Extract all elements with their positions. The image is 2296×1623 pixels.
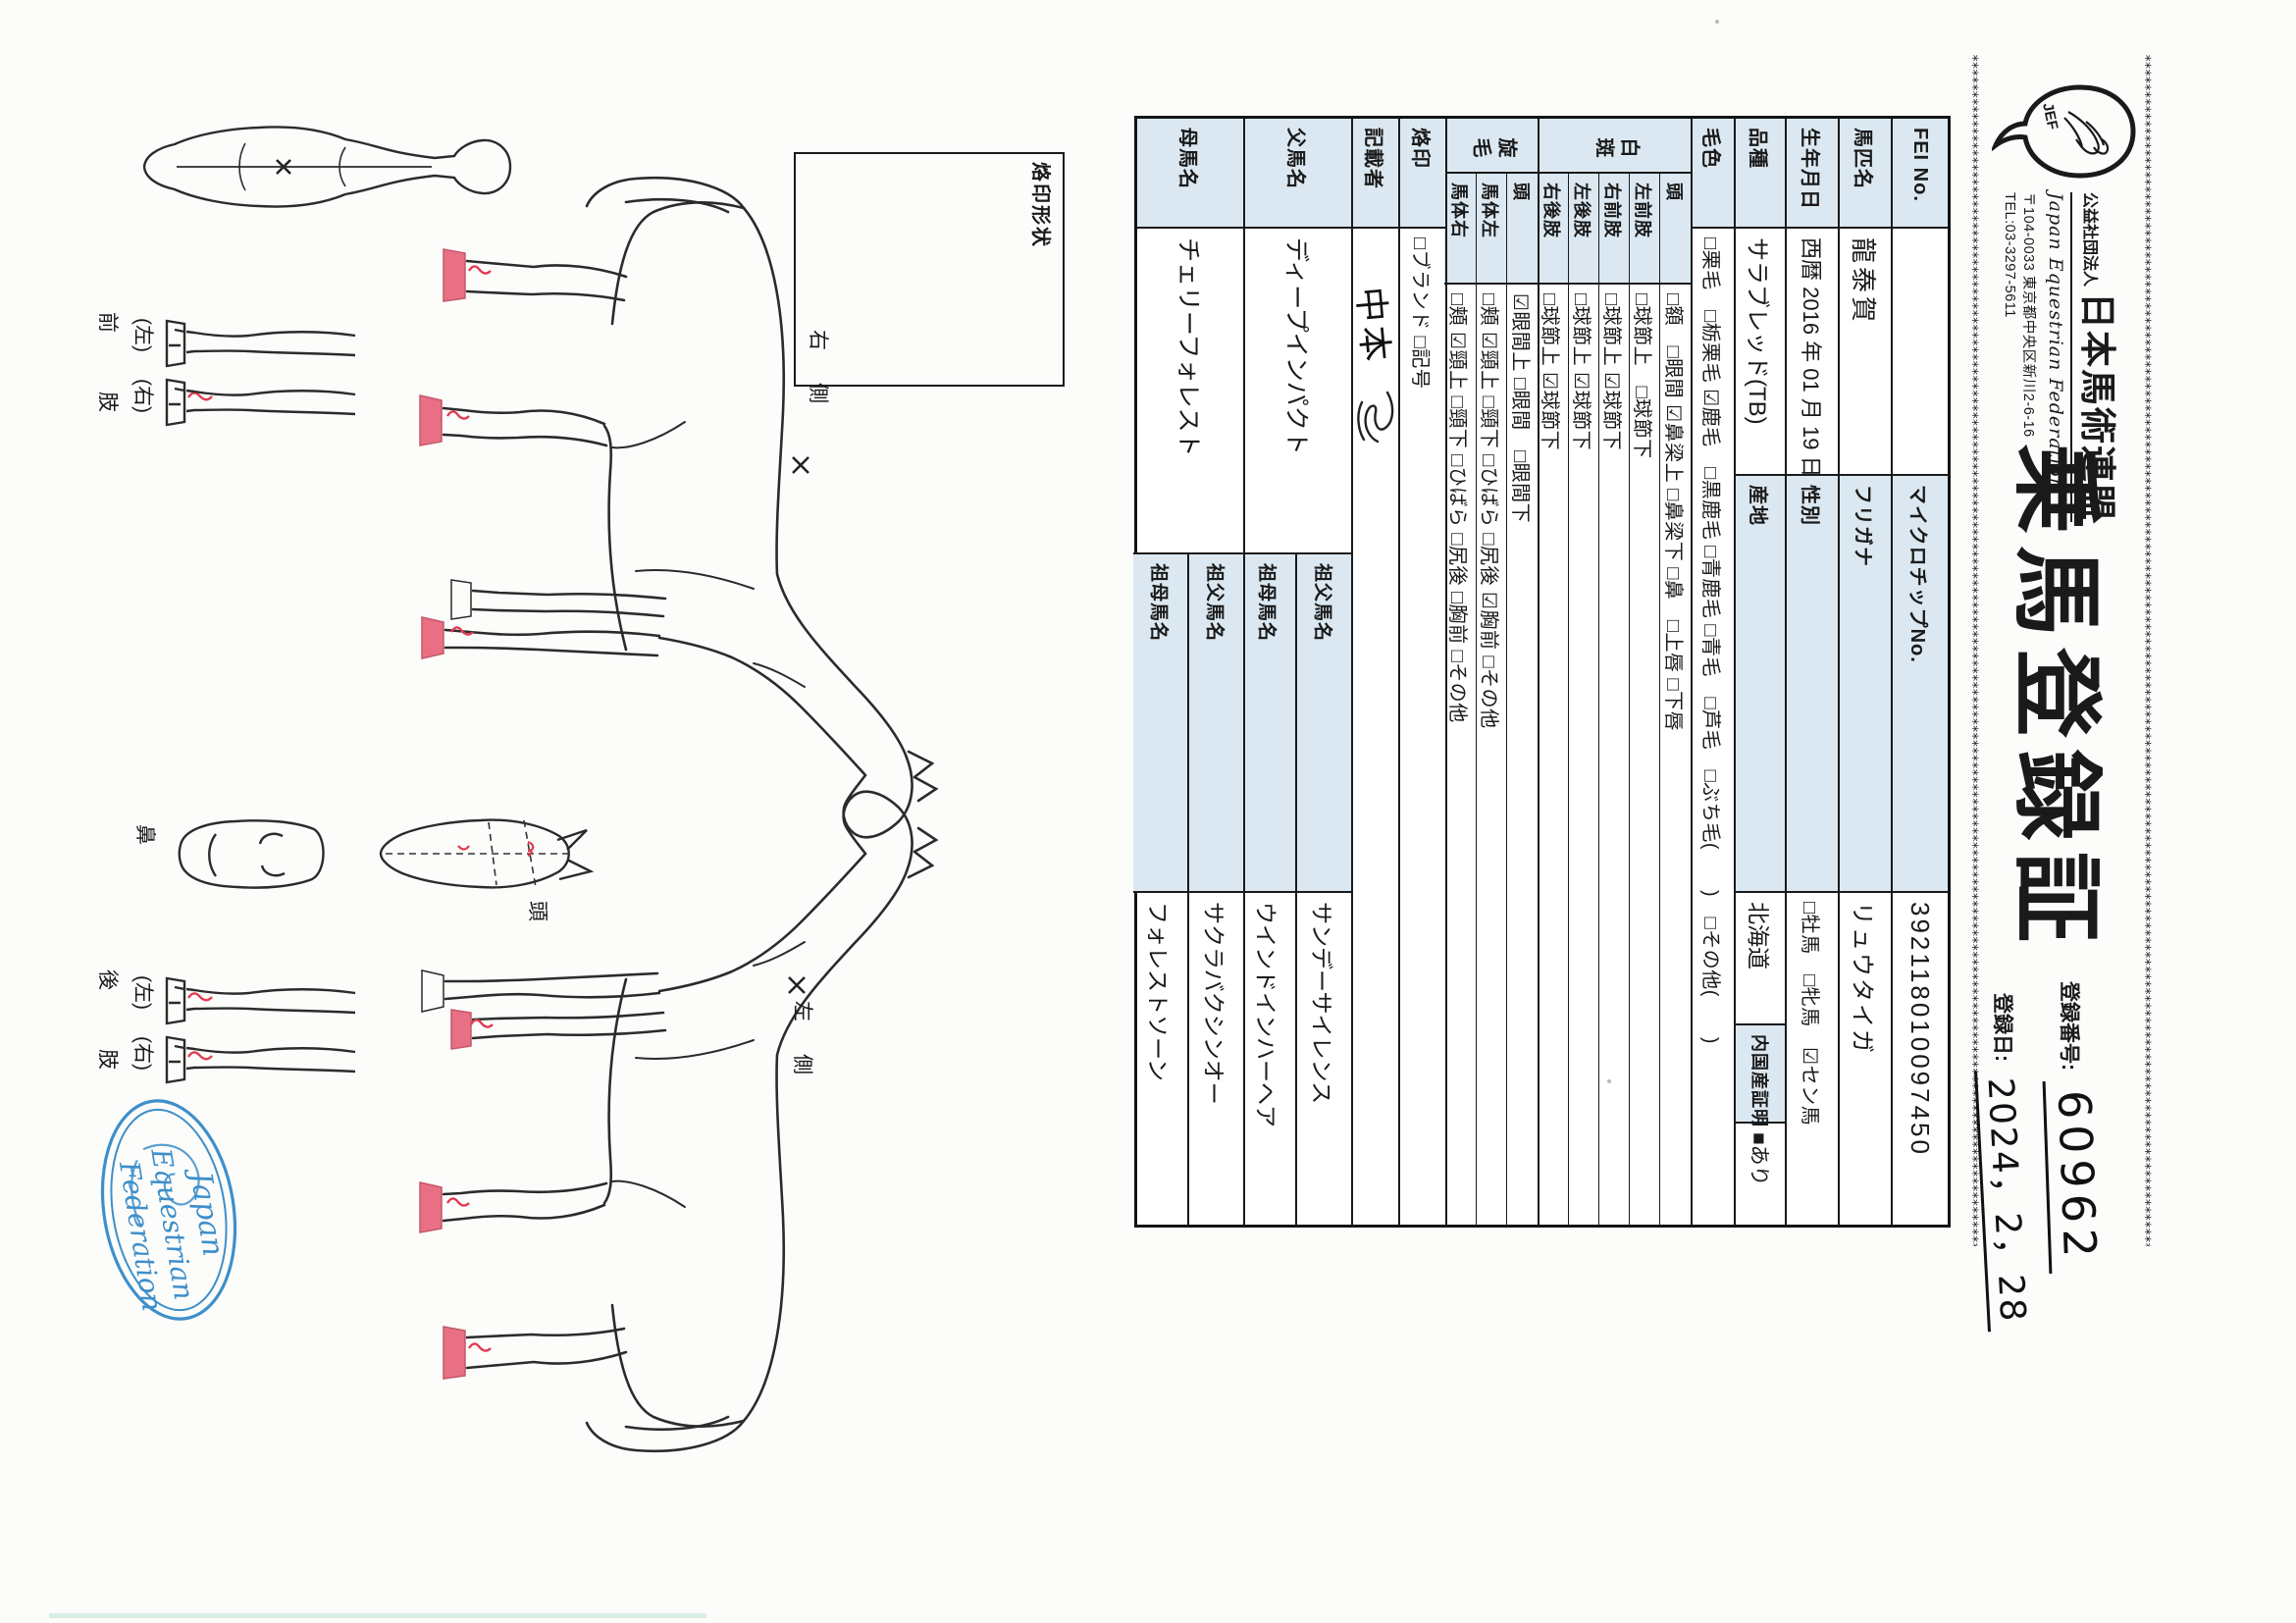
- whorls-subrows: 頭 ☑眼間上 □眼間 □眼間下 馬体左 □頬 ☑頸上 □頸下 □ひばら □尻後 …: [1445, 172, 1538, 1225]
- table-row-coat-color: 毛色 □栗毛 □栃栗毛 ☑鹿毛 □黒鹿毛 □青鹿毛 □青毛 □芦毛 □ぶち毛( …: [1693, 119, 1736, 1225]
- certificate-sheet: ****************************************…: [0, 0, 2296, 1623]
- whorl-body-left-row: 馬体左 □頬 ☑頸上 □頸下 □ひばら □尻後 ☑胸前 □その他: [1476, 172, 1507, 1225]
- wm-head-value: □額 □眼間 ☑鼻梁上 □鼻梁下 □鼻 □上唇 □下唇: [1660, 283, 1691, 1225]
- dam-gm-row: 祖母馬名 フォレストソーン: [1133, 552, 1189, 1225]
- document-title: 乗馬登録証: [1999, 444, 2129, 954]
- horse-right-side-outline: [444, 178, 936, 837]
- scan-speck: [1715, 20, 1719, 24]
- front-limbs-diagram: [167, 321, 355, 425]
- microchip-value: 392118010097450: [1893, 891, 1948, 1225]
- furigana-value: リュウタイガ: [1840, 891, 1891, 1225]
- fei-value: [1893, 227, 1948, 474]
- wm-right-fore-row: 右前肢 □球節上 ☑球節下: [1598, 172, 1630, 1225]
- registration-date-label: 登録日:: [1981, 993, 2018, 1062]
- birthdate-value: 西暦 2016 年 01 月 19 日 生: [1787, 227, 1838, 474]
- domestic-cert-label: 内国産証明: [1736, 1023, 1785, 1122]
- brand-value: □ブランド □記号: [1400, 227, 1445, 1225]
- sire-gf-row: 祖父馬名 サンデーサイレンス: [1297, 552, 1351, 1225]
- whorl-body-left-label: 馬体左: [1476, 172, 1506, 283]
- domestic-cert-value: ■あり: [1736, 1122, 1785, 1225]
- recorder-label: 記載者: [1353, 119, 1398, 227]
- registration-number-row: 登録番号: 60962: [2046, 981, 2104, 1273]
- wm-left-hind-row: 左後肢 □球節上 ☑球節下: [1568, 172, 1599, 1225]
- horse-data-table: FEI No. マイクロチップNo. 392118010097450 馬匹名 龍…: [1134, 116, 1951, 1228]
- wm-right-fore-label: 右前肢: [1598, 172, 1629, 283]
- label-front-right-paren: (右): [130, 379, 159, 413]
- whorls-group-text: 旋毛: [1467, 133, 1518, 157]
- wm-head-label: 頭: [1660, 172, 1691, 283]
- horse-name-label: 馬匹名: [1840, 119, 1891, 227]
- wm-head-row: 頭 □額 □眼間 ☑鼻梁上 □鼻梁下 □鼻 □上唇 □下唇: [1660, 172, 1691, 1225]
- coat-color-label: 毛色: [1693, 119, 1734, 227]
- dam-grandsire-label: 祖父馬名: [1189, 552, 1243, 891]
- breed-label: 品種: [1736, 119, 1785, 227]
- table-row-fei: FEI No. マイクロチップNo. 392118010097450: [1893, 119, 1948, 1225]
- sex-label: 性別: [1787, 474, 1838, 891]
- head-front-view: [381, 820, 591, 888]
- sire-grandsire-value: サンデーサイレンス: [1297, 891, 1351, 1225]
- label-left-side: 左 側: [789, 1001, 818, 1080]
- decorative-border-top: ****************************************…: [2135, 54, 2153, 1246]
- table-row-birthdate: 生年月日 西暦 2016 年 01 月 19 日 生 性別 □牡馬 □牝馬 ☑セ…: [1787, 119, 1840, 1225]
- registration-date-value: 2024，2，28: [1974, 1069, 2042, 1333]
- wm-right-hind-value: □球節上 ☑球節下: [1537, 283, 1568, 1225]
- whorls-group-label: 旋毛: [1447, 119, 1538, 172]
- white-markings-group-label: 白斑: [1539, 119, 1691, 172]
- whorl-head-row: 頭 ☑眼間上 □眼間 □眼間下: [1507, 172, 1538, 1225]
- dam-grandsire-value: サクラバクシンオー: [1189, 891, 1243, 1225]
- org-type: 公益社団法人: [2081, 192, 2098, 287]
- nose-bridge-red-mark: [458, 846, 469, 850]
- sire-label: 父馬名: [1245, 119, 1351, 227]
- table-row-brand: 烙印 □ブランド □記号: [1400, 119, 1447, 1225]
- birthdate-label: 生年月日: [1787, 119, 1838, 227]
- jef-logo-text: JEF: [2039, 101, 2061, 131]
- label-hind-right-paren: (右): [130, 1036, 159, 1071]
- scanned-registration-certificate: ****************************************…: [0, 0, 2296, 1623]
- fei-label: FEI No.: [1893, 119, 1948, 227]
- sire-value: ディープインパクト: [1245, 227, 1351, 552]
- white-markings-subrows: 頭 □額 □眼間 ☑鼻梁上 □鼻梁下 □鼻 □上唇 □下唇 左前肢 □球節上 □…: [1538, 172, 1691, 1225]
- dam-value: チェリーフォレスト: [1137, 227, 1243, 552]
- dam-gf-row: 祖父馬名 サクラバクシンオー: [1189, 552, 1243, 1225]
- sire-granddam-value: ウインドインハーヘア: [1241, 891, 1295, 1225]
- furigana-label: フリガナ: [1840, 474, 1891, 891]
- horse-top-view-outline: [144, 128, 510, 207]
- dam-granddam-label: 祖母馬名: [1133, 552, 1187, 891]
- horse-left-side-hooves: [420, 970, 471, 1379]
- scan-speck: [1607, 1079, 1611, 1083]
- wm-right-fore-value: □球節上 ☑球節下: [1598, 283, 1629, 1225]
- wm-right-hind-label: 右後肢: [1537, 172, 1568, 283]
- sex-value: □牡馬 □牝馬 ☑セン馬: [1787, 891, 1838, 1225]
- white-markings-group-text: 白斑: [1590, 133, 1641, 157]
- nose-view-outline: [180, 820, 324, 887]
- horse-name-value: 龍泰賀: [1840, 227, 1891, 474]
- label-hind-limb: 後 肢: [94, 969, 124, 1075]
- table-group-white-markings: 白斑 頭 □額 □眼間 ☑鼻梁上 □鼻梁下 □鼻 □上唇 □下唇 左前肢 □球節…: [1539, 119, 1693, 1225]
- horse-left-side-outline: [444, 792, 936, 1451]
- whorl-head-value: ☑眼間上 □眼間 □眼間下: [1507, 283, 1538, 1225]
- brand-label: 烙印: [1400, 119, 1445, 227]
- whorl-body-right-label: 馬体右: [1444, 172, 1476, 283]
- jef-stamp-icon: Japan Equestrian Federation: [90, 1087, 247, 1333]
- whorl-body-right-value: □頬 ☑頸上 □頸下 □ひばら □尻後 □胸前 □その他: [1444, 283, 1476, 1225]
- whorl-head-label: 頭: [1507, 172, 1538, 283]
- breed-value: サラブレッド(TB): [1736, 227, 1785, 474]
- recorder-seal-scribble-icon: [1354, 383, 1397, 451]
- wm-left-hind-label: 左後肢: [1568, 172, 1598, 283]
- decorative-border-bottom: ****************************************…: [1962, 54, 1980, 1246]
- dam-granddam-value: フォレストソーン: [1133, 891, 1187, 1225]
- whorl-body-right-row: 馬体右 □頬 ☑頸上 □頸下 □ひばら □尻後 □胸前 □その他: [1444, 172, 1477, 1225]
- registration-number-value: 60962: [2043, 1079, 2108, 1274]
- label-right-side: 右 側: [805, 330, 834, 409]
- scan-edge-artifact: [49, 1613, 706, 1618]
- sire-grandsire-label: 祖父馬名: [1297, 552, 1351, 891]
- sire-gm-row: 祖母馬名 ウインドインハーヘア: [1241, 552, 1297, 1225]
- table-row-recorder: 記載者 中本: [1353, 119, 1400, 1225]
- wm-left-fore-value: □球節上 □球節下: [1629, 283, 1659, 1225]
- origin-value: 北海道: [1736, 891, 1785, 1023]
- horse-right-side-hooves: [420, 249, 471, 658]
- dam-grandparents: 祖父馬名 サクラバクシンオー 祖母馬名 フォレストソーン: [1135, 552, 1243, 1225]
- sire-grandparents: 祖父馬名 サンデーサイレンス 祖母馬名 ウインドインハーヘア: [1243, 552, 1351, 1225]
- wm-left-fore-label: 左前肢: [1629, 172, 1659, 283]
- dam-label: 母馬名: [1137, 119, 1243, 227]
- whorl-body-left-value: □頬 ☑頸上 □頸下 □ひばら □尻後 ☑胸前 □その他: [1476, 283, 1506, 1225]
- sire-granddam-label: 祖母馬名: [1241, 552, 1295, 891]
- recorder-value-cell: 中本: [1353, 227, 1398, 1225]
- jef-logo-icon: JEF: [1992, 82, 2137, 181]
- microchip-label: マイクロチップNo.: [1893, 474, 1948, 891]
- whorl-x-marks: [277, 160, 809, 993]
- wm-right-hind-row: 右後肢 □球節上 ☑球節下: [1537, 172, 1569, 1225]
- label-nose: 鼻: [131, 824, 161, 851]
- wm-left-hind-value: □球節上 ☑球節下: [1568, 283, 1598, 1225]
- wm-left-fore-row: 左前肢 □球節上 □球節下: [1629, 172, 1660, 1225]
- table-row-sire: 父馬名 ディープインパクト 祖父馬名 サンデーサイレンス 祖母馬名 ウインドイン…: [1245, 119, 1353, 1225]
- table-row-breed: 品種 サラブレッド(TB) 産地 北海道 内国産証明 ■あり: [1736, 119, 1787, 1225]
- label-front-left-paren: (左): [130, 318, 159, 352]
- label-front-limb: 前 肢: [94, 312, 124, 418]
- registration-number-label: 登録番号:: [2046, 981, 2085, 1071]
- origin-label: 産地: [1736, 474, 1785, 891]
- table-group-whorls: 旋毛 頭 ☑眼間上 □眼間 □眼間下 馬体左 □頬 ☑頸上 □頸下 □ひばら □…: [1447, 119, 1539, 1225]
- table-row-name: 馬匹名 龍泰賀 フリガナ リュウタイガ: [1840, 119, 1893, 1225]
- label-hind-left-paren: (左): [130, 975, 159, 1010]
- horse-marking-diagram: [0, 0, 1089, 1623]
- label-head: 頭: [524, 901, 553, 927]
- coat-color-value: □栗毛 □栃栗毛 ☑鹿毛 □黒鹿毛 □青鹿毛 □青毛 □芦毛 □ぶち毛( ) □…: [1693, 227, 1734, 1225]
- registration-date-row: 登録日: 2024，2，28: [1981, 993, 2035, 1331]
- recorder-signature: 中本: [1347, 285, 1405, 367]
- table-row-dam: 母馬名 チェリーフォレスト 祖父馬名 サクラバクシンオー 祖母馬名 フォレストソ…: [1137, 119, 1245, 1225]
